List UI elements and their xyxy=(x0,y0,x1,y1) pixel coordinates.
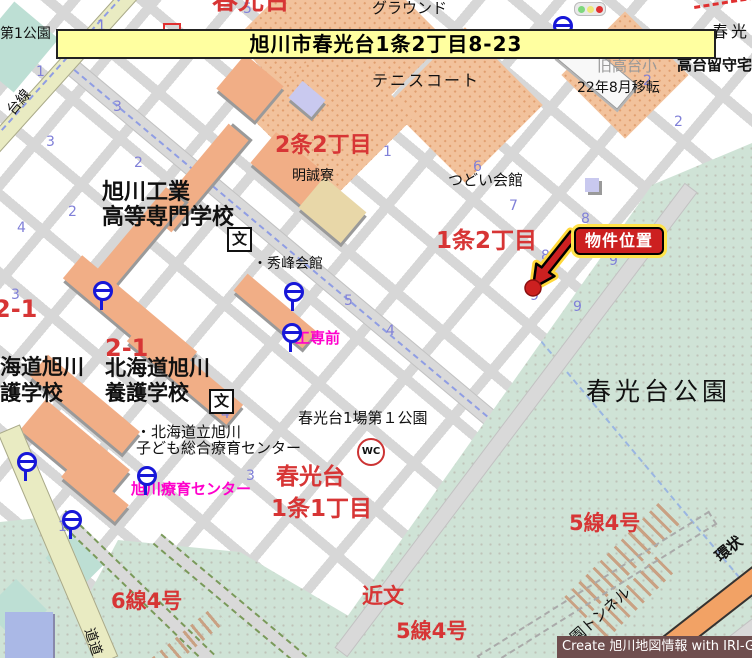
yogo-school-left-line2: 護学校 xyxy=(0,381,63,406)
map-attribution: Create 旭川地図情報 with IRI-GO xyxy=(557,636,752,658)
moved-note-label: 22年8月移転 xyxy=(577,80,660,97)
ground-label: グラウンド xyxy=(372,0,447,18)
yogo-school-line1: 北海道旭川 xyxy=(105,356,210,381)
block-number: 2 xyxy=(68,204,77,220)
park-1ba-label: 春光台1場第１公園 xyxy=(298,410,428,428)
district-label: 春光台 xyxy=(212,0,290,17)
line6-4-label: 6線4号 xyxy=(111,589,182,614)
tsudoi-hall-label: つどい会館 xyxy=(448,172,523,190)
old-school-label: 旧高台小 xyxy=(597,58,657,76)
property-location-label: 物件位置 xyxy=(574,227,664,255)
bus-stop-icon xyxy=(16,452,34,482)
shunko-edge-label: 春光 xyxy=(712,23,750,42)
ryoiku-center-line2: 子ども総合療育センター xyxy=(136,440,301,458)
shuho-hall-label: ・秀峰会館 xyxy=(253,256,323,273)
block-1jo1-line1: 春光台 xyxy=(276,464,345,491)
kosen-name-line1: 旭川工業 xyxy=(102,180,190,206)
address-banner: 旭川市春光台1条2丁目8-23 xyxy=(56,29,716,59)
school-symbol-icon: 文 xyxy=(209,389,234,414)
takadai-rusu-label: 高台留守宅 xyxy=(677,57,752,75)
meisei-dorm-label: 明誠寮 xyxy=(292,168,334,185)
wc-icon: WC xyxy=(357,438,385,466)
school-symbol-icon: 文 xyxy=(227,227,252,252)
block-1jo1-line2: 1条1丁目 xyxy=(271,496,372,523)
building xyxy=(5,612,53,658)
line5-4-label: 5線4号 xyxy=(569,511,640,536)
block-number: 3 xyxy=(113,99,122,115)
building-tsudoi-hall xyxy=(585,178,599,192)
block-number: 2 xyxy=(674,114,683,130)
traffic-light-icon xyxy=(574,2,606,16)
block-2-1-left-label: 2-1 xyxy=(0,295,37,323)
park-big-label: 春光台公園 xyxy=(586,377,731,407)
block-number: 4 xyxy=(17,220,26,236)
yogo-school-left-line1: 海道旭川 xyxy=(0,355,84,380)
bus-stop-icon xyxy=(281,323,299,353)
block-2jo2-label: 2条2丁目 xyxy=(275,133,372,159)
bus-stop-icon xyxy=(283,282,301,312)
bus-stop-icon xyxy=(92,281,110,311)
park-no1-label: 第1公園 xyxy=(0,26,51,43)
block-number: 2 xyxy=(134,155,143,171)
tennis-court-label: テニスコート xyxy=(372,72,480,91)
block-number: 1 xyxy=(36,64,45,80)
bus-stop-icon xyxy=(61,510,79,540)
block-number: 1 xyxy=(383,144,392,160)
line5-4-b-label: 5線4号 xyxy=(396,619,467,644)
yogo-school-line2: 養護学校 xyxy=(105,381,189,406)
map-canvas[interactable]: WC 文 文 511332243167889995443122 春光台 グラウン… xyxy=(0,0,752,658)
kosen-name-line2: 高等専門学校 xyxy=(102,205,234,231)
block-number: 5 xyxy=(344,293,353,309)
block-number: 4 xyxy=(386,323,395,339)
block-number: 7 xyxy=(509,198,518,214)
block-number: 3 xyxy=(46,134,55,150)
bus-stop-icon xyxy=(136,466,154,496)
chikabumi-label: 近文 xyxy=(362,584,404,609)
